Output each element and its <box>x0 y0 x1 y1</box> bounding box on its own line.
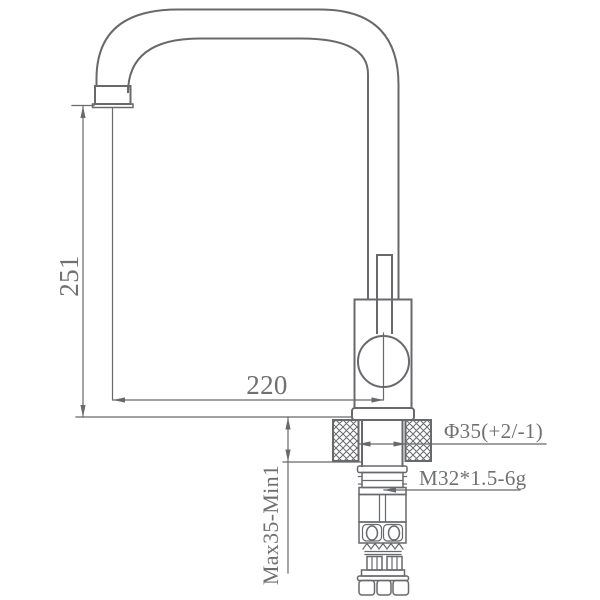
label-spout-reach: 220 <box>246 370 287 400</box>
dimension-labels: 251 220 Max35-Min1 Φ35(+2/-1) M32*1.5-6g <box>54 255 543 585</box>
dimension-lines <box>72 106 546 574</box>
riser-insert <box>377 255 392 300</box>
label-thread-spec: M32*1.5-6g <box>419 466 527 490</box>
spout-tip <box>95 86 131 104</box>
arrow-down-spout-height <box>80 405 85 417</box>
thread-section <box>359 473 407 488</box>
spout-outer-contour <box>97 10 399 300</box>
base-plate <box>352 408 414 420</box>
supply-nut-center <box>377 581 391 596</box>
countertop-section-right <box>406 420 432 461</box>
label-spout-height: 251 <box>54 255 84 296</box>
crimp-zigzag <box>363 544 403 550</box>
locking-nut <box>359 488 406 495</box>
hose-stub-left <box>367 557 382 571</box>
label-hole-diameter: Φ35(+2/-1) <box>444 419 543 443</box>
shank-collar <box>358 466 408 473</box>
arrow-left-spout-reach <box>113 397 125 402</box>
faucet-technical-drawing: 251 220 Max35-Min1 Φ35(+2/-1) M32*1.5-6g <box>0 0 600 600</box>
spout-inner-contour <box>128 39 368 300</box>
connector-housing-left <box>363 525 382 542</box>
supply-nut-left <box>359 581 375 596</box>
connector-port-right <box>389 526 400 540</box>
arrow-left-hole-diameter <box>359 441 371 446</box>
arrow-down-mounting-thickness <box>285 450 290 462</box>
hose-stub-right <box>387 557 402 571</box>
hose-connector-block <box>359 522 406 543</box>
label-mounting-thickness: Max35-Min1 <box>258 465 283 585</box>
arrow-up-mounting-thickness <box>285 418 290 430</box>
countertop-section-left <box>333 420 359 461</box>
lower-housing <box>359 495 406 523</box>
bottom-flange <box>362 570 405 576</box>
supply-nut-right <box>393 581 409 596</box>
arrow-right-spout-reach <box>372 397 384 402</box>
arrow-up-spout-height <box>80 106 85 118</box>
aerator-ring <box>93 104 134 108</box>
arrow-right-hole-diameter <box>394 441 406 446</box>
connector-port-left <box>367 526 378 540</box>
